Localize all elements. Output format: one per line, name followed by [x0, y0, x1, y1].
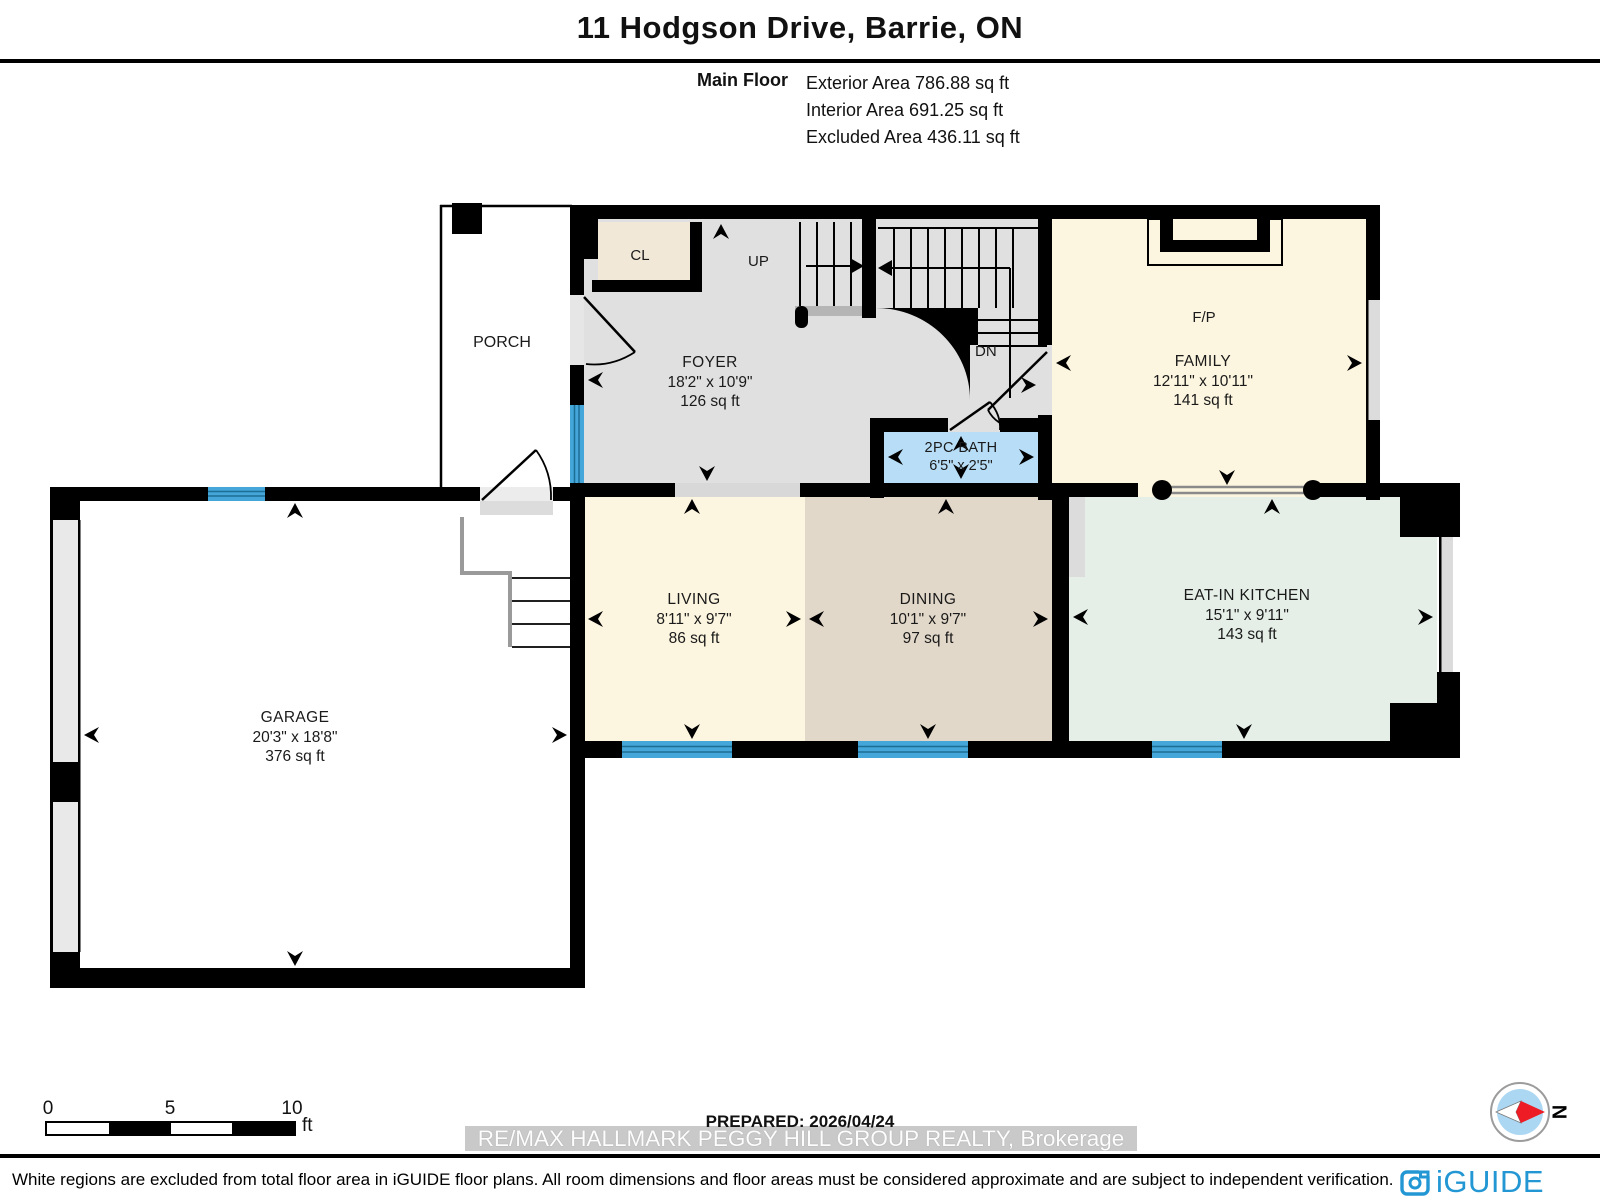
room-name: PORCH [473, 334, 531, 351]
wall-segment [570, 483, 585, 988]
room-dims: 15'1" x 9'11" [1125, 606, 1369, 626]
wall-segment [862, 205, 876, 318]
room-name: FAMILY [1103, 352, 1303, 372]
wall-segment [570, 205, 1380, 219]
wall-segment [965, 308, 978, 345]
garage-steps [462, 517, 571, 647]
room-label-porch: PORCH [452, 334, 552, 352]
wall-segment [1000, 418, 1052, 432]
disclaimer-text: White regions are excluded from total fl… [12, 1170, 1412, 1190]
fireplace-label: F/P [1164, 309, 1244, 326]
wall-segment [50, 487, 53, 988]
room-label-dining: DINING 10'1" x 9'7" 97 sq ft [828, 590, 1028, 649]
wall-segment [1390, 703, 1460, 758]
room-area: 376 sq ft [195, 747, 395, 767]
wall-segment [1437, 483, 1460, 537]
wall-segment [1366, 205, 1380, 300]
window-garage [208, 487, 265, 501]
room-name: CL [630, 247, 649, 264]
room-dims: 12'11" x 10'11" [1103, 372, 1303, 392]
room-name: GARAGE [195, 708, 395, 728]
room-label-garage: GARAGE 20'3" x 18'8" 376 sq ft [195, 708, 395, 767]
room-label-closet: CL [600, 247, 680, 264]
wall-segment [1038, 219, 1052, 345]
room-name: EAT-IN KITCHEN [1125, 586, 1369, 606]
iguide-logo: iGUIDE [1400, 1167, 1590, 1197]
room-dims: 10'1" x 9'7" [828, 610, 1028, 630]
room-dims: 8'11" x 9'7" [594, 610, 794, 630]
room-label-kitchen: EAT-IN KITCHEN 15'1" x 9'11" 143 sq ft [1125, 586, 1369, 645]
wall-segment [690, 222, 702, 292]
room-label-bath: 2PC BATH 6'5" x 2'5" [881, 439, 1041, 475]
window-living [622, 741, 732, 758]
iguide-camera-icon [1400, 1168, 1430, 1196]
prepared-date: PREPARED: 2026/04/24 [0, 1112, 1600, 1132]
window-kitchen [1152, 741, 1222, 758]
room-name: FOYER [610, 353, 810, 373]
wall-segment [570, 483, 675, 497]
room-label-family: FAMILY 12'11" x 10'11" 141 sq ft [1103, 352, 1303, 411]
room-area: 97 sq ft [828, 629, 1028, 649]
room-name: DINING [828, 590, 1028, 610]
stairs-down-label: DN [975, 343, 1015, 360]
window-dining [858, 741, 968, 758]
room-dims: 6'5" x 2'5" [881, 457, 1041, 475]
room-floor-family [1052, 219, 1366, 483]
stairs-up-label: UP [748, 253, 784, 270]
room-label-foyer: FOYER 18'2" x 10'9" 126 sq ft [610, 353, 810, 412]
garage-door [50, 487, 81, 988]
wall-segment [584, 219, 598, 259]
room-area: 141 sq ft [1103, 391, 1303, 411]
wall-segment [50, 968, 585, 988]
wall-segment [570, 365, 584, 405]
room-area: 86 sq ft [594, 629, 794, 649]
room-dims: 18'2" x 10'9" [610, 373, 810, 393]
footer-divider [0, 1154, 1600, 1158]
room-area: 126 sq ft [610, 392, 810, 412]
room-label-living: LIVING 8'11" x 9'7" 86 sq ft [594, 590, 794, 649]
room-name: 2PC BATH [881, 439, 1041, 457]
room-area: 143 sq ft [1125, 625, 1369, 645]
room-dims: 20'3" x 18'8" [195, 728, 395, 748]
wall-segment [800, 483, 1138, 497]
wall-porch-post [452, 203, 482, 234]
wall-segment [1052, 483, 1069, 741]
wall-segment [570, 205, 584, 295]
window-foyer [570, 405, 584, 483]
wall-segment [592, 280, 702, 292]
room-name: LIVING [594, 590, 794, 610]
iguide-logo-text: iGUIDE [1436, 1167, 1544, 1197]
